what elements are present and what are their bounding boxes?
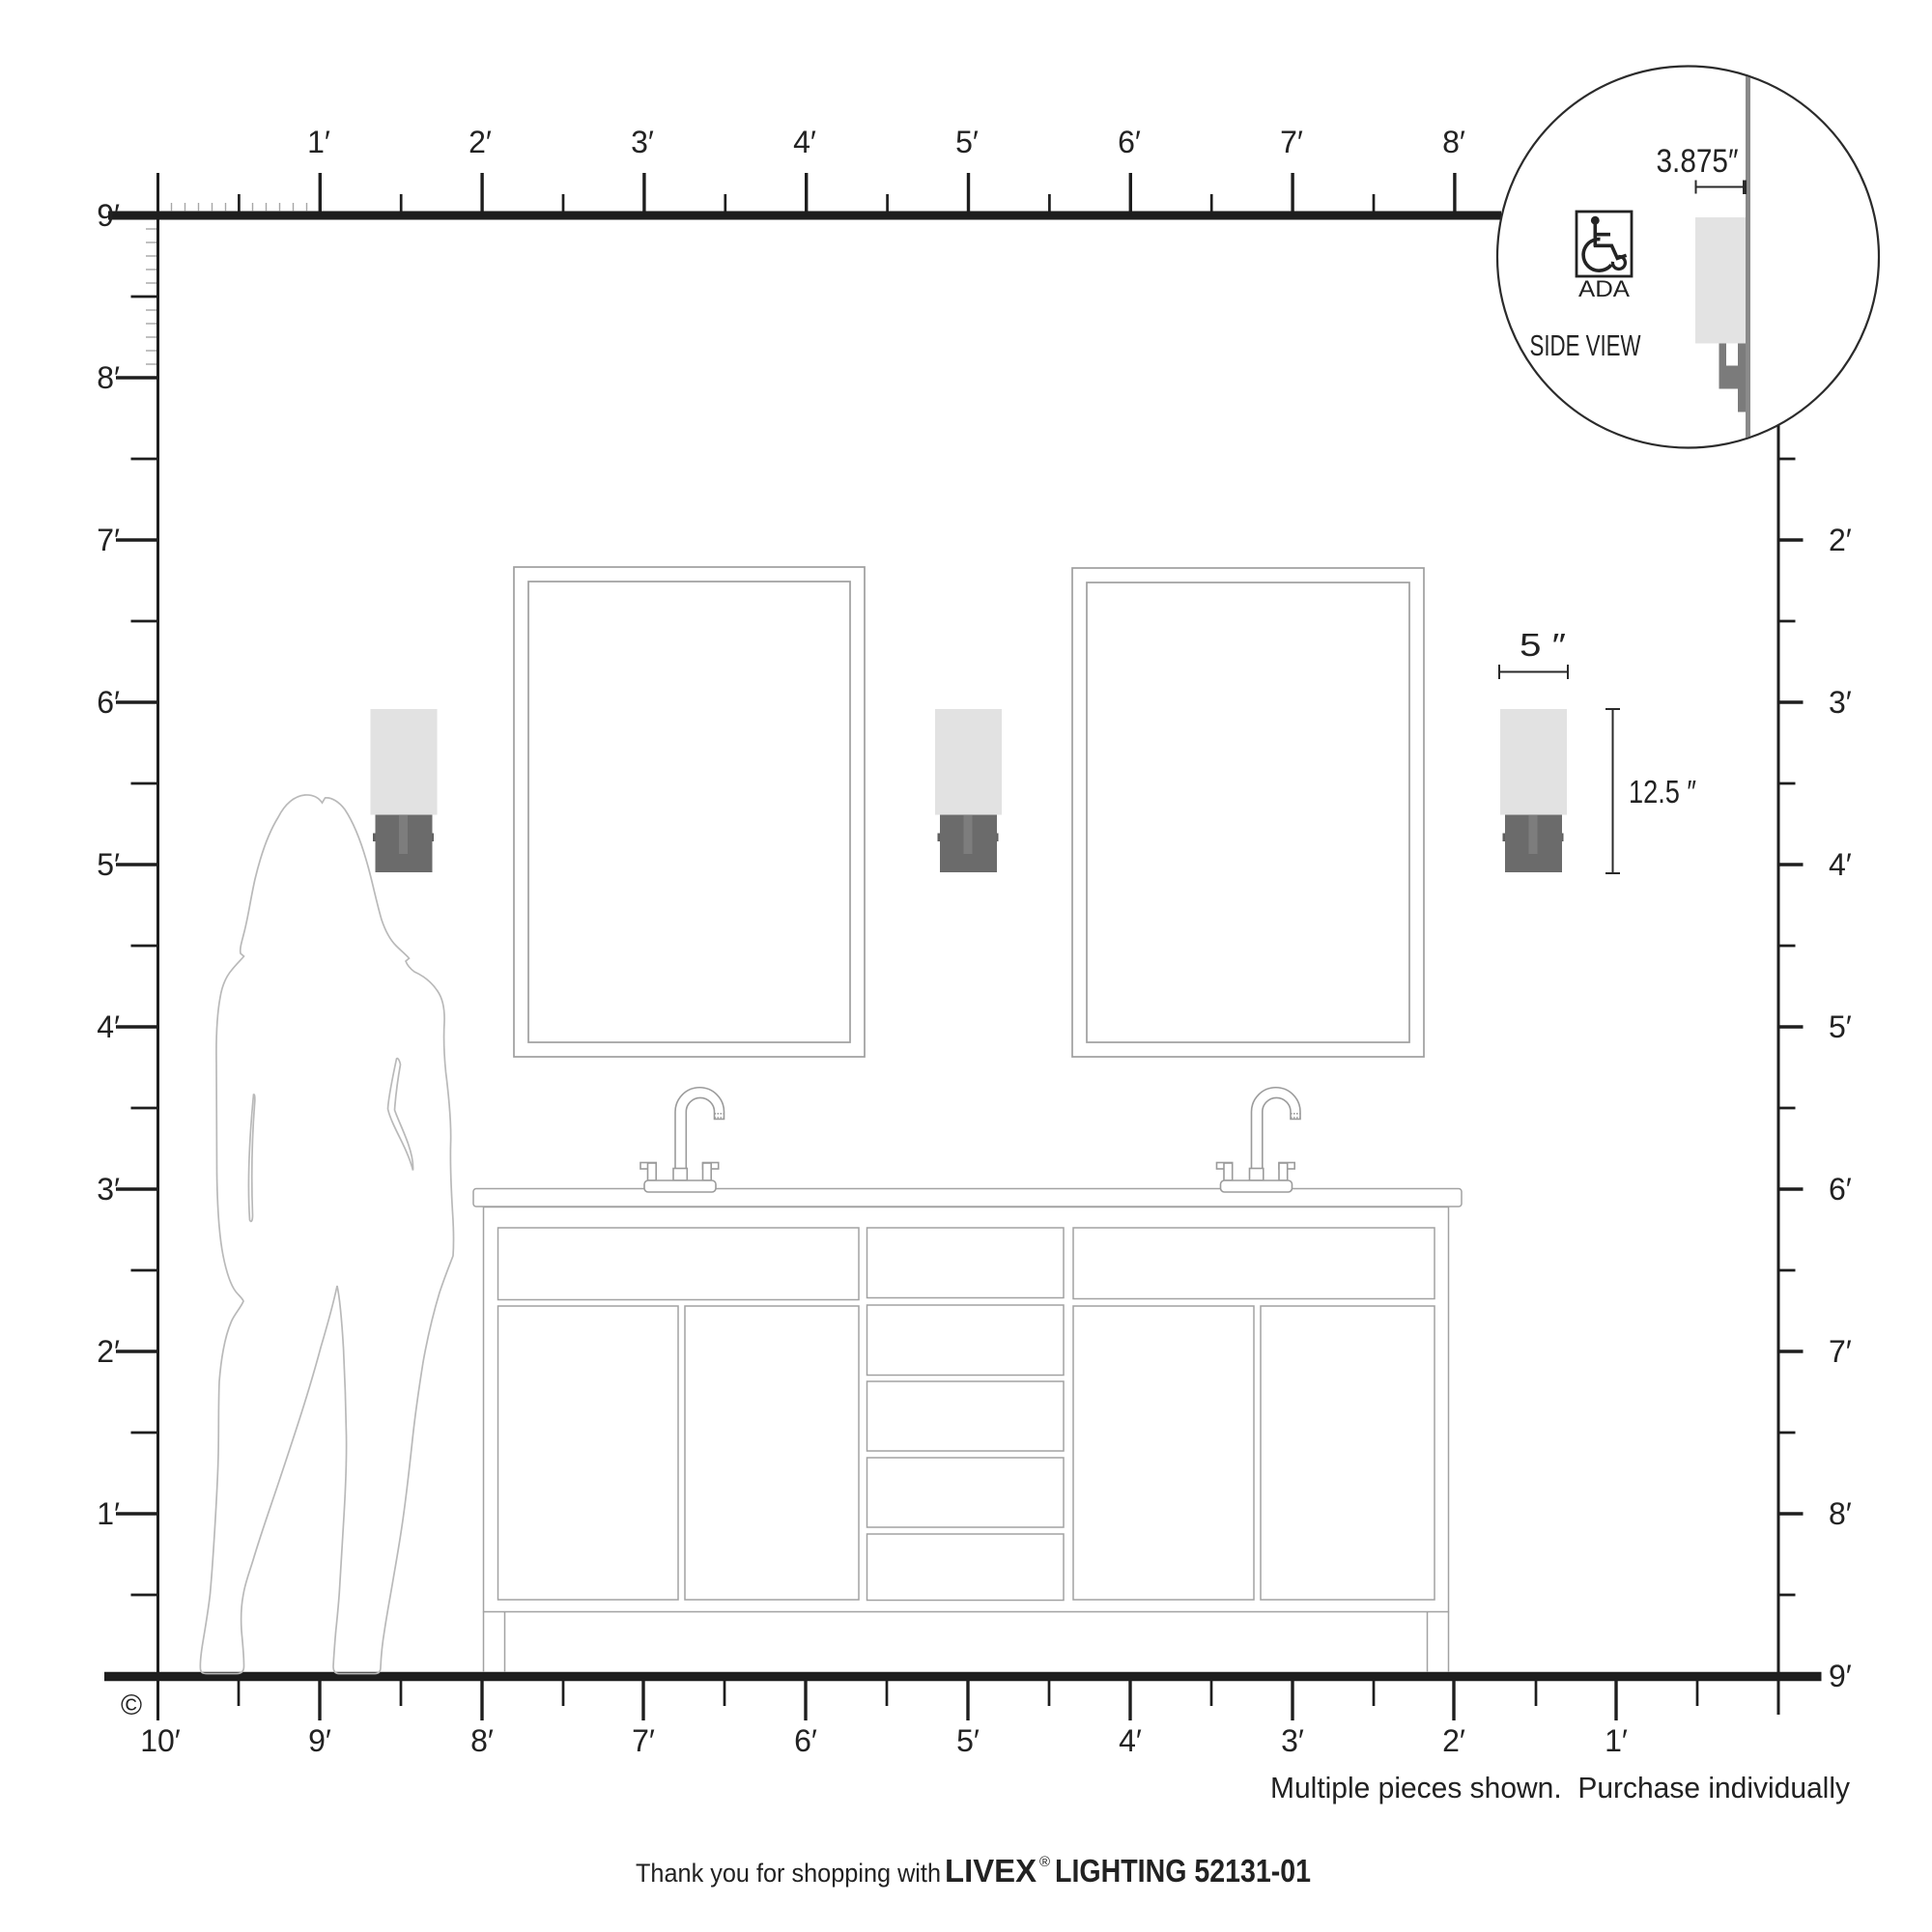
- svg-text:1′: 1′: [97, 1496, 120, 1531]
- svg-text:2′: 2′: [469, 125, 492, 159]
- svg-text:LIGHTING 52131-01: LIGHTING 52131-01: [1055, 1853, 1311, 1889]
- svg-text:2′: 2′: [1829, 523, 1852, 557]
- svg-text:9′: 9′: [97, 198, 120, 233]
- svg-text:5′: 5′: [1829, 1009, 1852, 1044]
- svg-text:8′: 8′: [1442, 125, 1465, 159]
- svg-text:5′: 5′: [956, 1723, 980, 1758]
- svg-text:6′: 6′: [1829, 1172, 1852, 1207]
- svg-text:5′: 5′: [955, 125, 979, 159]
- svg-text:3′: 3′: [1281, 1723, 1304, 1758]
- svg-text:LIVEX: LIVEX: [945, 1853, 1037, 1889]
- svg-text:9′: 9′: [1829, 1659, 1852, 1693]
- svg-text:3.875″: 3.875″: [1657, 143, 1739, 180]
- svg-text:3′: 3′: [97, 1172, 120, 1207]
- svg-text:Thank you for shopping with: Thank you for shopping with: [636, 1859, 941, 1888]
- svg-text:Multiple pieces shown. Purcha: Multiple pieces shown. Purchase individu…: [1270, 1771, 1850, 1804]
- svg-text:7′: 7′: [97, 523, 120, 557]
- svg-text:8′: 8′: [1829, 1496, 1852, 1531]
- svg-text:2′: 2′: [1442, 1723, 1465, 1758]
- svg-text:©: ©: [121, 1690, 142, 1721]
- svg-text:7′: 7′: [1829, 1334, 1852, 1369]
- svg-text:4′: 4′: [97, 1009, 120, 1044]
- svg-text:2′: 2′: [97, 1334, 120, 1369]
- svg-text:6′: 6′: [1118, 125, 1141, 159]
- svg-text:6′: 6′: [794, 1723, 817, 1758]
- svg-text:9′: 9′: [308, 1723, 331, 1758]
- svg-text:10′: 10′: [140, 1723, 181, 1758]
- svg-text:3′: 3′: [1829, 685, 1852, 720]
- svg-text:4′: 4′: [1119, 1723, 1142, 1758]
- svg-text:3′: 3′: [631, 125, 654, 159]
- svg-text:8′: 8′: [97, 360, 120, 395]
- svg-text:SIDE VIEW: SIDE VIEW: [1530, 328, 1642, 362]
- svg-text:4′: 4′: [793, 125, 816, 159]
- svg-text:12.5 ″: 12.5 ″: [1629, 774, 1696, 810]
- svg-text:6′: 6′: [97, 685, 120, 720]
- svg-text:®: ®: [1039, 1854, 1050, 1870]
- svg-text:7′: 7′: [1280, 125, 1303, 159]
- svg-text:4′: 4′: [1829, 847, 1852, 882]
- svg-text:ADA: ADA: [1578, 276, 1630, 302]
- svg-text:5′: 5′: [97, 847, 120, 882]
- svg-text:1′: 1′: [1605, 1723, 1628, 1758]
- svg-text:7′: 7′: [632, 1723, 655, 1758]
- svg-text:5 ″: 5 ″: [1520, 627, 1566, 663]
- svg-text:8′: 8′: [470, 1723, 494, 1758]
- svg-text:1′: 1′: [307, 125, 330, 159]
